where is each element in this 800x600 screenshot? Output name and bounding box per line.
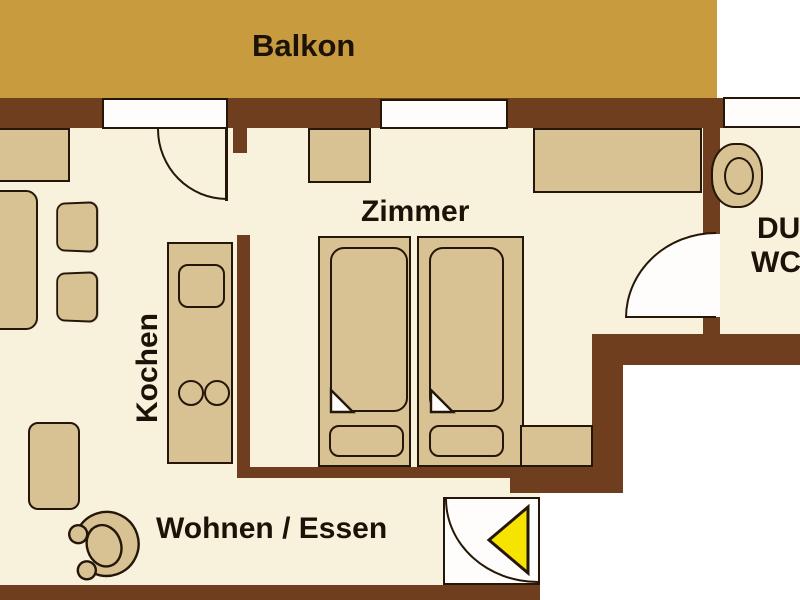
bath-door-swing	[625, 232, 716, 318]
stove-burner-1	[178, 380, 204, 406]
wall-below-beds-thick	[510, 467, 623, 493]
chair-1	[56, 201, 98, 253]
stove-burner-2	[204, 380, 230, 406]
wall-stub-top	[233, 128, 247, 153]
balcony-label: Balkon	[252, 30, 355, 61]
south-wall-living	[0, 585, 542, 600]
exterior-east-notch	[623, 365, 800, 495]
armchair	[66, 500, 146, 584]
exterior-southeast	[540, 493, 800, 600]
exterior-top-right	[717, 0, 800, 98]
kitchen-label: Kochen	[133, 306, 167, 430]
bedroom-window-opening	[380, 99, 508, 129]
kitchen-sink	[178, 264, 225, 308]
bed-left-duvet-fold	[327, 386, 357, 416]
small-table-bottom	[28, 422, 80, 510]
balcony-door-opening	[102, 98, 228, 129]
wardrobe-right	[533, 128, 702, 193]
bath-label-line2: WC	[751, 248, 800, 278]
wardrobe-left	[308, 128, 371, 183]
wall-below-beds-thin	[237, 467, 513, 478]
sideboard-top-left	[0, 128, 70, 182]
chair-2	[56, 271, 98, 323]
bedroom-label: Zimmer	[361, 197, 469, 227]
bench-southeast	[520, 425, 593, 467]
south-wall-bath	[592, 334, 800, 365]
floor-plan: Balkon	[0, 0, 800, 600]
dining-table	[0, 190, 38, 330]
kitchen-divider-wall	[237, 235, 250, 467]
balcony-door-arc	[157, 129, 227, 200]
bath-label-line1: DU	[757, 214, 800, 244]
bed-right-pillow	[429, 425, 504, 457]
bed-left-pillow	[329, 425, 404, 457]
entry-arrow	[486, 504, 531, 576]
living-dining-label: Wohnen / Essen	[156, 514, 387, 544]
washbasin-bowl	[724, 157, 754, 195]
balcony-door-leaf	[225, 129, 228, 201]
bed-right-duvet-fold	[427, 386, 457, 416]
balcony-area	[0, 0, 717, 98]
bath-window-opening	[723, 97, 800, 128]
